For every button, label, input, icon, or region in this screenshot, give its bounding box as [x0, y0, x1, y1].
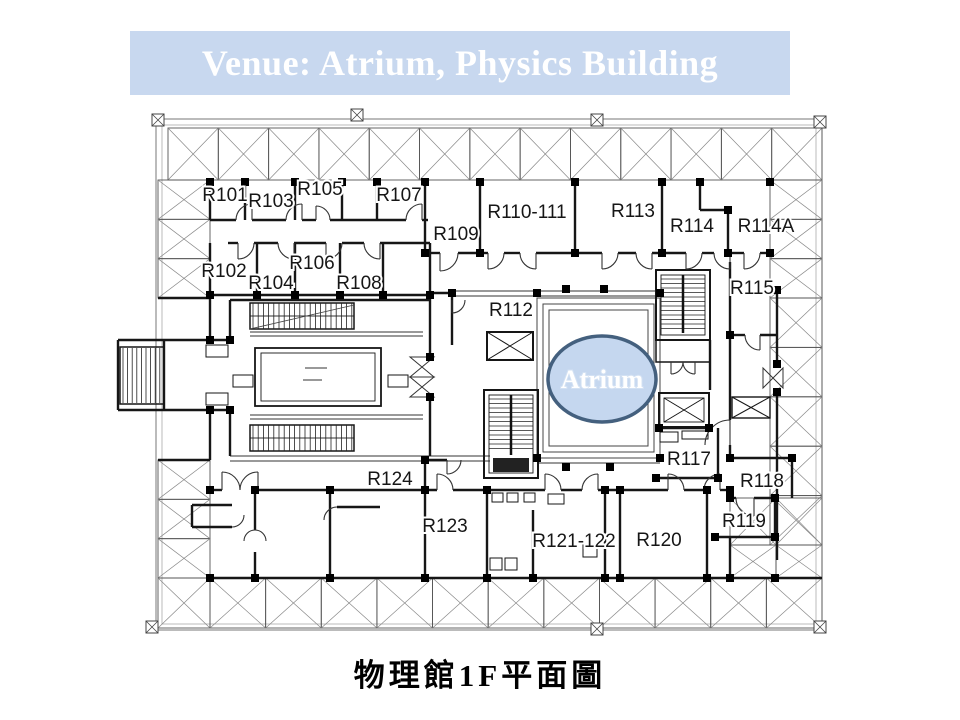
- room-label-R114A: R114A: [738, 216, 795, 237]
- room-label-R103: R103: [248, 191, 293, 212]
- room-label-R109: R109: [433, 224, 478, 245]
- atrium-label: Atrium: [561, 365, 644, 394]
- room-label-R119: R119: [722, 511, 766, 532]
- room-labels: R101R103R105R107R109R110-111R113R114R114…: [201, 179, 794, 552]
- room-label-R104: R104: [248, 273, 294, 294]
- floor-plan: R101R103R105R107R109R110-111R113R114R114…: [0, 0, 960, 720]
- room-label-R117: R117: [667, 449, 711, 470]
- plan-caption: 物理館1F平面圖: [0, 650, 960, 695]
- room-label-R121-122: R121-122: [532, 531, 615, 552]
- room-label-R107: R107: [376, 185, 421, 206]
- room-label-R102: R102: [201, 261, 246, 282]
- room-label-R112: R112: [489, 300, 533, 321]
- room-label-R124: R124: [367, 469, 413, 490]
- room-label-R108: R108: [336, 273, 381, 294]
- room-label-R101: R101: [202, 185, 247, 206]
- room-label-R118: R118: [740, 471, 784, 492]
- room-label-R115: R115: [730, 278, 774, 299]
- room-label-R120: R120: [636, 530, 681, 551]
- room-label-R123: R123: [422, 516, 467, 537]
- room-label-R114: R114: [670, 216, 714, 237]
- room-label-R113: R113: [611, 201, 655, 222]
- room-label-R105: R105: [297, 179, 342, 200]
- room-label-R110-111: R110-111: [487, 202, 566, 223]
- room-label-R106: R106: [289, 253, 334, 274]
